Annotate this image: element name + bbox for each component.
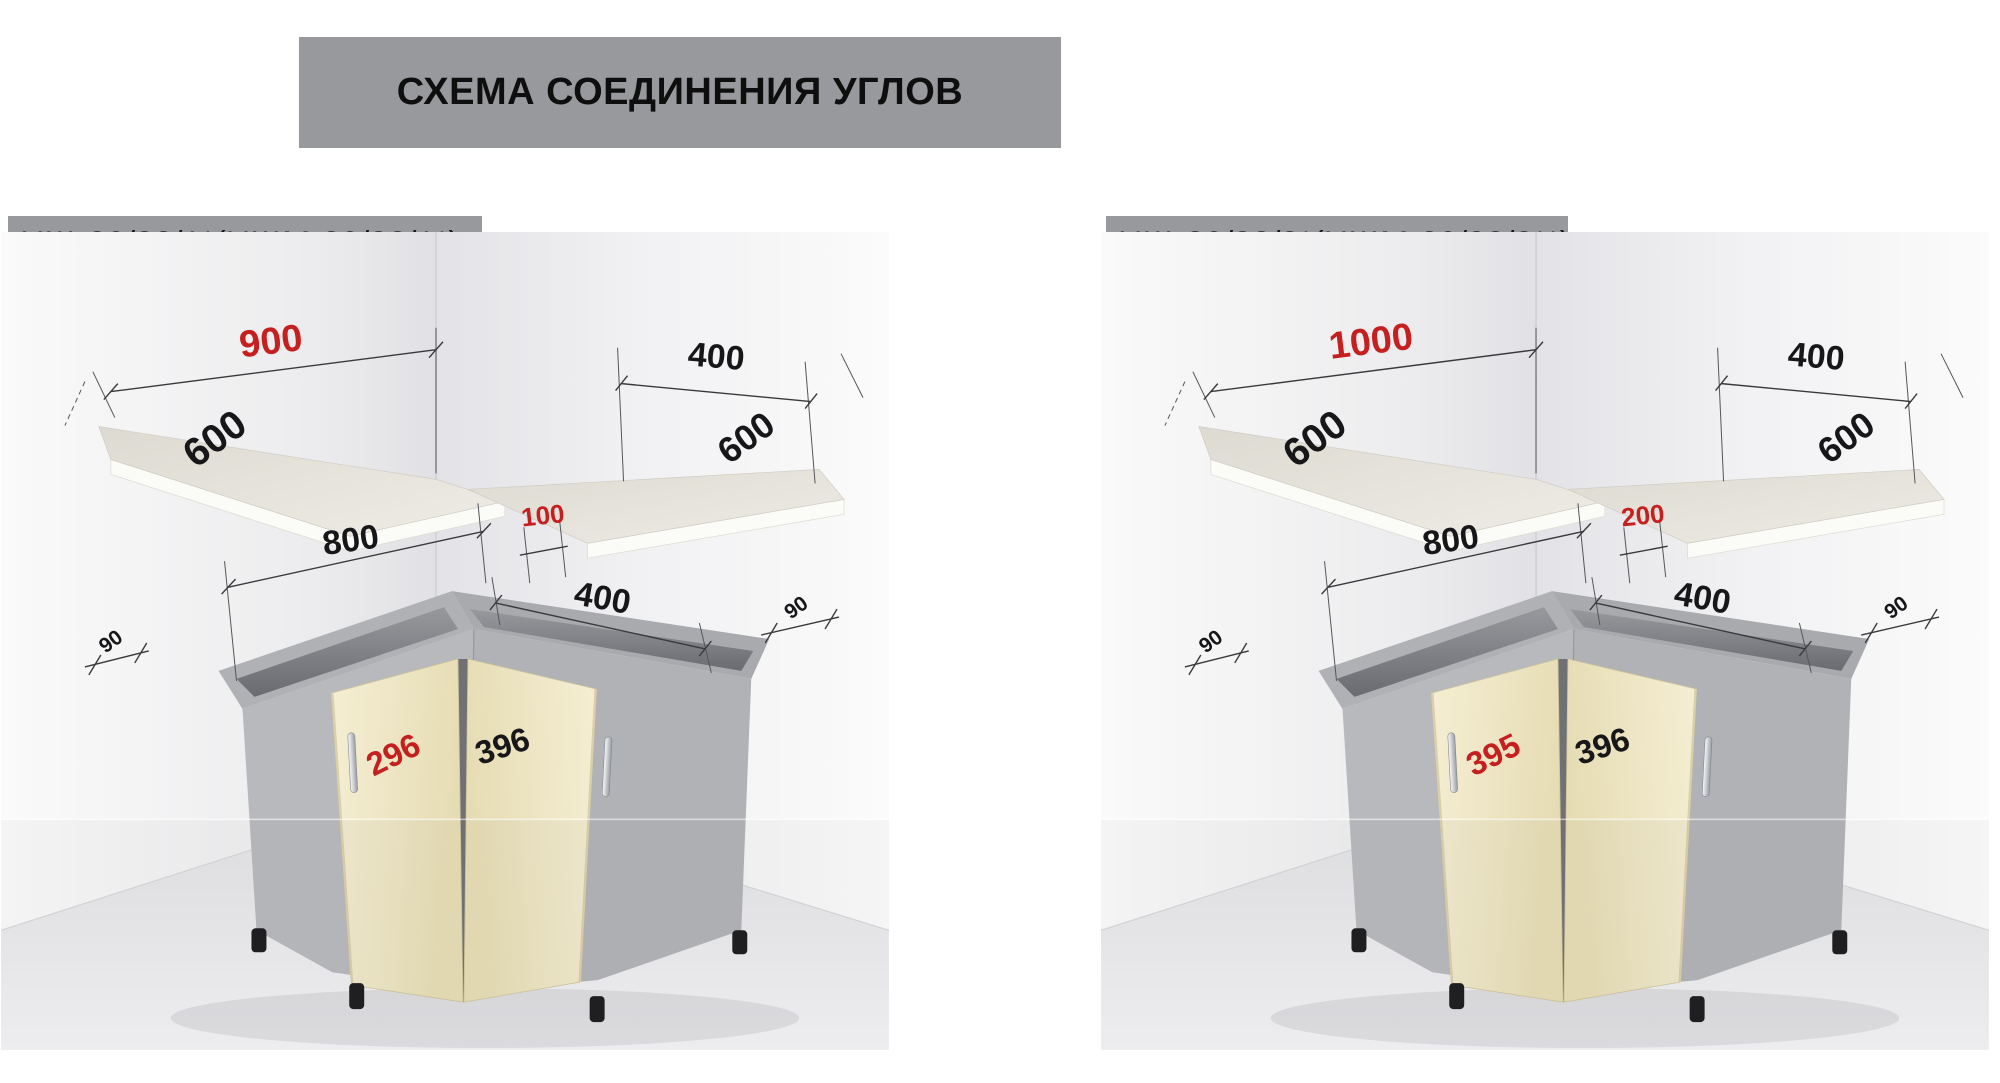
dim-corner-gap: 100 (520, 500, 566, 532)
dim-worktop-main-length: 900 (237, 317, 305, 366)
photo-seam (1, 819, 889, 821)
page-title-text: СХЕМА СОЕДИНЕНИЯ УГЛОВ (397, 71, 963, 114)
photo-seam (1101, 819, 1989, 821)
corner-cabinet-diagram-1: 900 600 400 600 (0, 232, 890, 1050)
photo-seam-shade (1101, 820, 1989, 1049)
dim-worktop-side-length: 400 (686, 335, 746, 378)
dim-carcass-main-width: 800 (1420, 518, 1481, 564)
page-title: СХЕМА СОЕДИНЕНИЯ УГЛОВ (299, 37, 1061, 148)
corner-cabinet-diagram-2: 1000 600 400 600 (1100, 232, 1990, 1050)
photo-seam-shade (1, 820, 889, 1049)
dim-worktop-side-length: 400 (1786, 335, 1846, 378)
dim-corner-gap: 200 (1620, 500, 1666, 532)
dim-carcass-main-width: 800 (320, 518, 381, 564)
